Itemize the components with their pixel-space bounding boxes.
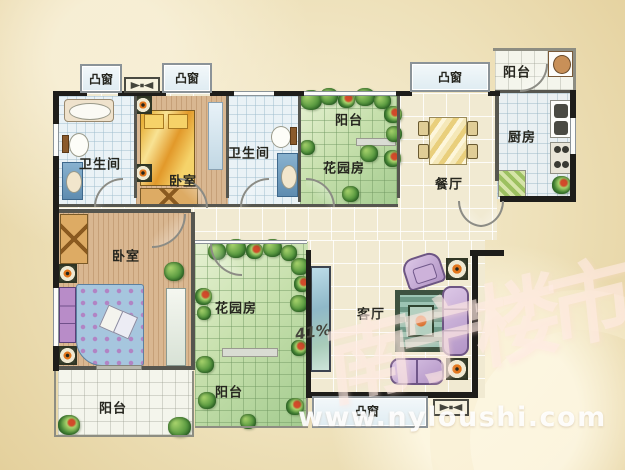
pillow	[168, 114, 188, 129]
partition-wall	[298, 96, 301, 202]
dining-chair-icon	[418, 144, 429, 159]
window	[302, 91, 398, 96]
wall	[306, 250, 311, 394]
bed-double-blue	[76, 284, 144, 366]
dining-table-icon	[429, 117, 467, 165]
toilet-icon	[270, 124, 298, 149]
tall-cabinet-icon	[166, 288, 186, 366]
washer-drum	[553, 55, 571, 74]
site-watermark: www.nyloushi.com	[298, 402, 607, 433]
sink-basin	[554, 121, 568, 135]
bathtub-basin	[69, 103, 111, 120]
kitchen-counter	[498, 170, 526, 197]
balcony-rail	[573, 48, 576, 92]
room-label-garden-balcony: 阳台	[335, 110, 363, 129]
dining-chair-icon	[418, 121, 429, 136]
floor-plan-canvas: 卫生间 卧室 卫生间 阳台 花园房 餐厅 阳台 厨房 卧室 花园房 客厅 阳台 …	[0, 0, 625, 470]
nightstand-lamp-icon	[58, 264, 77, 283]
tall-cabinet-icon	[208, 102, 223, 170]
plant-icon	[196, 356, 214, 373]
room-label-kitchen-balcony: 阳台	[503, 62, 531, 81]
balcony-rail	[192, 371, 194, 437]
partition-wall	[397, 96, 400, 198]
partition-wall	[58, 209, 191, 213]
plant-icon	[246, 243, 263, 259]
nightstand-lamp-icon	[58, 346, 77, 365]
room-label-bathroom-1: 卫生间	[79, 154, 121, 173]
balcony-rail	[54, 435, 194, 437]
room-label-kitchen: 厨房	[508, 127, 536, 146]
room-label-bedroom-2: 卧室	[112, 246, 140, 265]
balcony-rail	[54, 369, 56, 437]
bathtub-icon	[64, 99, 114, 122]
window	[53, 124, 59, 156]
toilet-tank	[290, 127, 297, 145]
room-label-balcony-bottom-left: 阳台	[99, 398, 127, 417]
bay-window-label: 凸窗	[438, 69, 462, 86]
sink-basin	[281, 165, 297, 189]
room-label-bathroom-2: 卫生间	[228, 143, 270, 162]
sliding-door	[96, 365, 142, 370]
plant-icon	[300, 140, 315, 155]
pillow	[144, 114, 164, 129]
partition-wall	[58, 366, 98, 370]
partition-wall	[134, 96, 137, 198]
wall	[210, 91, 236, 96]
balcony-rail	[493, 48, 575, 51]
wardrobe-icon	[60, 214, 88, 264]
plant-icon	[197, 306, 211, 320]
window	[53, 288, 59, 346]
burner	[554, 146, 561, 153]
bay-window-label: 凸窗	[175, 70, 199, 87]
dining-chair-icon	[467, 121, 478, 136]
room-label-bedroom-1: 卧室	[169, 171, 197, 190]
plant-icon	[58, 415, 80, 435]
stove-icon	[550, 142, 572, 174]
partition-wall	[191, 212, 195, 370]
burner	[562, 146, 569, 153]
washing-machine-icon	[548, 51, 573, 77]
partition-wall	[495, 90, 575, 93]
room-label-dining: 餐厅	[435, 174, 463, 193]
balcony-rail	[195, 426, 308, 428]
toilet-bowl	[271, 126, 291, 148]
sink-basin	[554, 104, 568, 118]
ac-unit-box	[124, 77, 160, 93]
room-label-garden-room-1: 花园房	[323, 158, 365, 177]
plant-icon	[164, 262, 184, 281]
burner	[554, 161, 561, 168]
dresser-icon	[59, 287, 76, 343]
sink-vanity-icon	[277, 153, 298, 197]
wall	[500, 196, 576, 202]
toilet-tank	[62, 135, 69, 153]
window	[234, 91, 276, 96]
sink-basin	[66, 171, 82, 193]
partition-wall	[495, 93, 499, 181]
ac-unit-icon	[129, 81, 155, 90]
burner	[562, 161, 569, 168]
window	[570, 118, 576, 154]
plant-icon	[195, 288, 212, 305]
bay-window-label: 凸窗	[89, 71, 113, 88]
garden-bench	[222, 348, 278, 357]
room-label-garden-room-2: 花园房	[215, 298, 257, 317]
dining-chair-icon	[467, 144, 478, 159]
room-label-balcony-bottom-mid: 阳台	[215, 382, 243, 401]
kitchen-sink-icon	[550, 100, 572, 138]
plant-icon	[552, 176, 571, 194]
plant-icon	[168, 417, 191, 437]
plant-icon	[198, 392, 216, 409]
plant-icon	[342, 186, 359, 202]
wall	[274, 91, 304, 96]
partition-wall	[140, 366, 193, 370]
entry-door-arc	[480, 201, 504, 227]
